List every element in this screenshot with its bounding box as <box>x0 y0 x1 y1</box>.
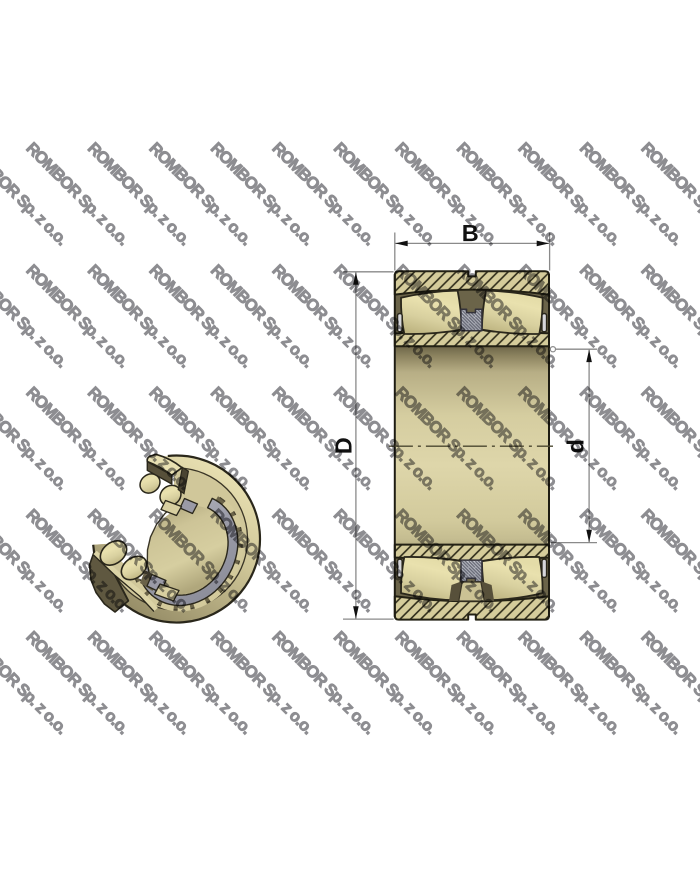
svg-text:ROMBOR Sp. z o.o.: ROMBOR Sp. z o.o. <box>576 506 686 616</box>
svg-text:ROMBOR Sp. z o.o.: ROMBOR Sp. z o.o. <box>268 506 378 616</box>
svg-text:ROMBOR Sp. z o.o.: ROMBOR Sp. z o.o. <box>207 628 317 738</box>
svg-text:ROMBOR Sp. z o.o.: ROMBOR Sp. z o.o. <box>145 261 255 371</box>
svg-text:ROMBOR Sp. z o.o.: ROMBOR Sp. z o.o. <box>84 261 194 371</box>
svg-text:ROMBOR Sp. z o.o.: ROMBOR Sp. z o.o. <box>268 261 378 371</box>
svg-text:ROMBOR Sp. z o.o.: ROMBOR Sp. z o.o. <box>391 628 501 738</box>
svg-text:ROMBOR Sp. z o.o.: ROMBOR Sp. z o.o. <box>268 139 378 249</box>
svg-text:ROMBOR Sp. z o.o.: ROMBOR Sp. z o.o. <box>84 139 194 249</box>
svg-text:ROMBOR Sp. z o.o.: ROMBOR Sp. z o.o. <box>330 139 440 249</box>
svg-text:ROMBOR Sp. z o.o.: ROMBOR Sp. z o.o. <box>576 261 686 371</box>
svg-text:ROMBOR Sp. z o.o.: ROMBOR Sp. z o.o. <box>576 139 686 249</box>
svg-text:ROMBOR Sp. z o.o.: ROMBOR Sp. z o.o. <box>22 139 132 249</box>
svg-text:ROMBOR Sp. z o.o.: ROMBOR Sp. z o.o. <box>576 384 686 494</box>
svg-text:ROMBOR Sp. z o.o.: ROMBOR Sp. z o.o. <box>22 261 132 371</box>
svg-text:ROMBOR Sp. z o.o.: ROMBOR Sp. z o.o. <box>84 628 194 738</box>
svg-text:ROMBOR Sp. z o.o.: ROMBOR Sp. z o.o. <box>514 139 624 249</box>
svg-text:ROMBOR Sp. z o.o.: ROMBOR Sp. z o.o. <box>145 628 255 738</box>
svg-text:ROMBOR Sp. z o.o.: ROMBOR Sp. z o.o. <box>145 139 255 249</box>
svg-text:ROMBOR Sp. z o.o.: ROMBOR Sp. z o.o. <box>576 628 686 738</box>
svg-text:ROMBOR Sp. z o.o.: ROMBOR Sp. z o.o. <box>391 139 501 249</box>
svg-text:ROMBOR Sp. z o.o.: ROMBOR Sp. z o.o. <box>453 628 563 738</box>
svg-text:ROMBOR Sp. z o.o.: ROMBOR Sp. z o.o. <box>22 384 132 494</box>
svg-text:ROMBOR Sp. z o.o.: ROMBOR Sp. z o.o. <box>268 628 378 738</box>
svg-text:ROMBOR Sp. z o.o.: ROMBOR Sp. z o.o. <box>207 261 317 371</box>
svg-text:ROMBOR Sp. z o.o.: ROMBOR Sp. z o.o. <box>22 628 132 738</box>
svg-text:ROMBOR Sp. z o.o.: ROMBOR Sp. z o.o. <box>268 384 378 494</box>
svg-text:ROMBOR Sp. z o.o.: ROMBOR Sp. z o.o. <box>514 628 624 738</box>
svg-text:ROMBOR Sp. z o.o.: ROMBOR Sp. z o.o. <box>330 628 440 738</box>
svg-text:ROMBOR Sp. z o.o.: ROMBOR Sp. z o.o. <box>207 139 317 249</box>
